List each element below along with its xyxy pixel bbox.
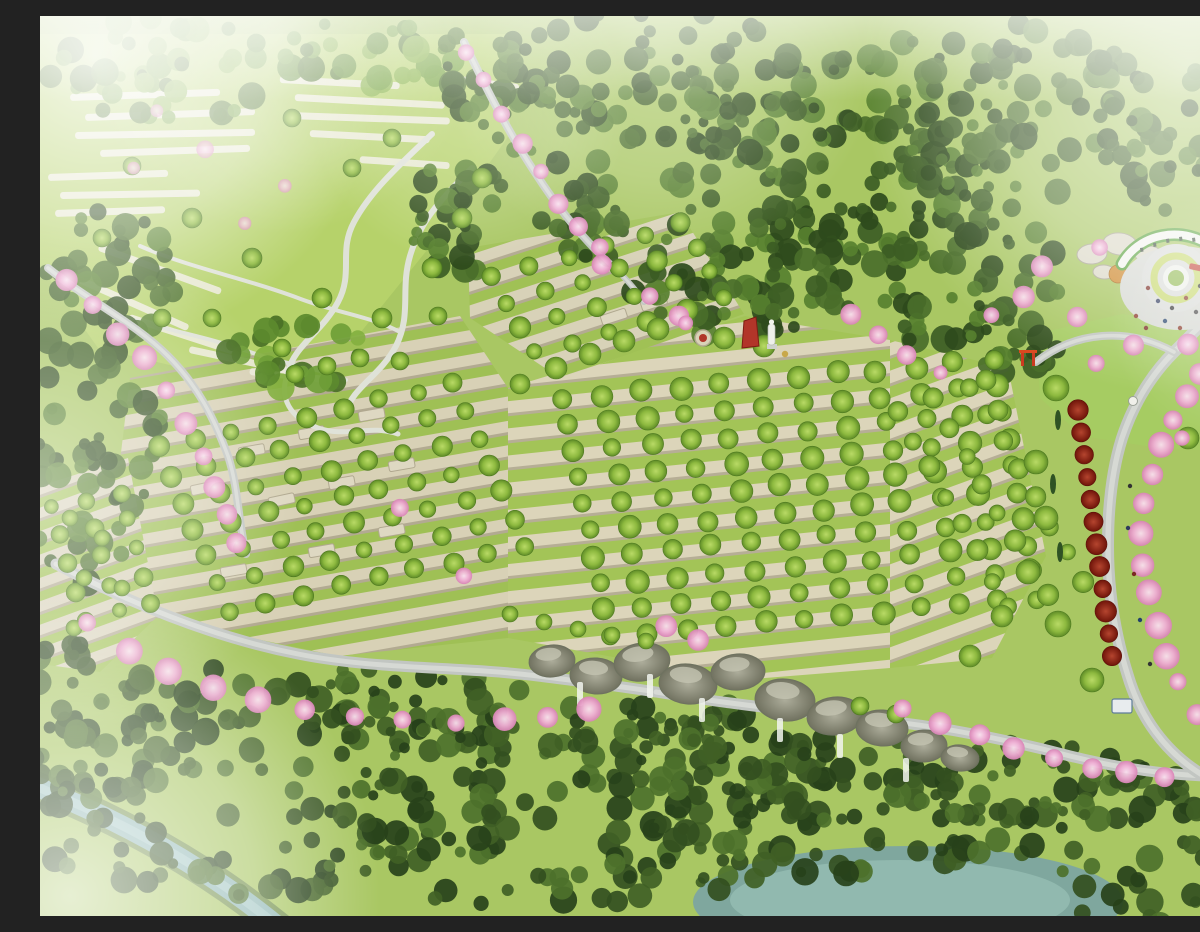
blossom-cluster (678, 316, 693, 331)
person (1138, 618, 1142, 622)
blossom-cluster (346, 708, 364, 726)
blossom-cluster (1045, 749, 1063, 767)
blossom-cluster (894, 700, 912, 718)
blossom-cluster (929, 712, 952, 735)
blossom-cluster (1142, 464, 1163, 485)
blossom-cluster (655, 615, 677, 637)
blossom-cluster (447, 714, 464, 731)
white-gazebo (1129, 397, 1138, 406)
red-tree (1079, 468, 1096, 485)
blossom-cluster (840, 304, 861, 325)
blossom-cluster (393, 711, 411, 729)
waterfall (837, 734, 843, 758)
blossom-cluster (897, 345, 917, 365)
red-tree (1094, 580, 1112, 598)
blossom-cluster (456, 568, 473, 585)
waterfall (699, 698, 705, 722)
red-tree (1081, 490, 1100, 509)
blossom-cluster (1128, 521, 1153, 546)
red-tree (1072, 423, 1091, 442)
red-tree (1100, 625, 1118, 643)
person (1132, 572, 1136, 576)
scene-canvas (40, 16, 1200, 916)
person (1126, 526, 1130, 530)
blossom-cluster (869, 326, 888, 345)
red-tree (1084, 512, 1103, 531)
cypress-tree (1057, 542, 1063, 562)
red-tree (1102, 646, 1121, 665)
aerial-site-rendering: Aerial rendering of terraced memorial pa… (40, 16, 1200, 916)
blossom-cluster (1153, 643, 1180, 670)
blossom-cluster (1115, 761, 1137, 783)
red-tree (1090, 556, 1110, 576)
person (1148, 662, 1152, 666)
blossom-cluster (576, 697, 601, 722)
blossom-cluster (1169, 673, 1186, 690)
red-gate (1021, 352, 1024, 366)
red-tree (1075, 445, 1094, 464)
waterfall (903, 758, 909, 782)
blossom-cluster (391, 499, 409, 517)
blossom-cluster (641, 287, 658, 304)
blossom-cluster (1154, 767, 1174, 787)
blossom-cluster (969, 724, 990, 745)
red-tree (1095, 601, 1117, 623)
blossom-cluster (1136, 579, 1162, 605)
blossom-cluster (934, 366, 948, 380)
blossom-cluster (1002, 737, 1024, 759)
pergola (1112, 699, 1132, 713)
blossom-cluster (537, 707, 558, 728)
blossom-cluster (1133, 493, 1154, 514)
waterfall (647, 674, 653, 698)
blossom-cluster (493, 707, 517, 731)
red-tree (1086, 534, 1107, 555)
cypress-tree (1055, 410, 1061, 430)
waterfall (777, 718, 783, 742)
blossom-cluster (687, 629, 709, 651)
blossom-cluster (1145, 612, 1172, 639)
person (1128, 484, 1132, 488)
statue (768, 324, 775, 345)
gold-figure (782, 351, 788, 357)
memorial-monument (742, 317, 759, 348)
blossom-cluster (1082, 758, 1102, 778)
blossom-cluster (1148, 432, 1174, 458)
cypress-tree (1050, 474, 1056, 494)
red-tree (1068, 400, 1089, 421)
